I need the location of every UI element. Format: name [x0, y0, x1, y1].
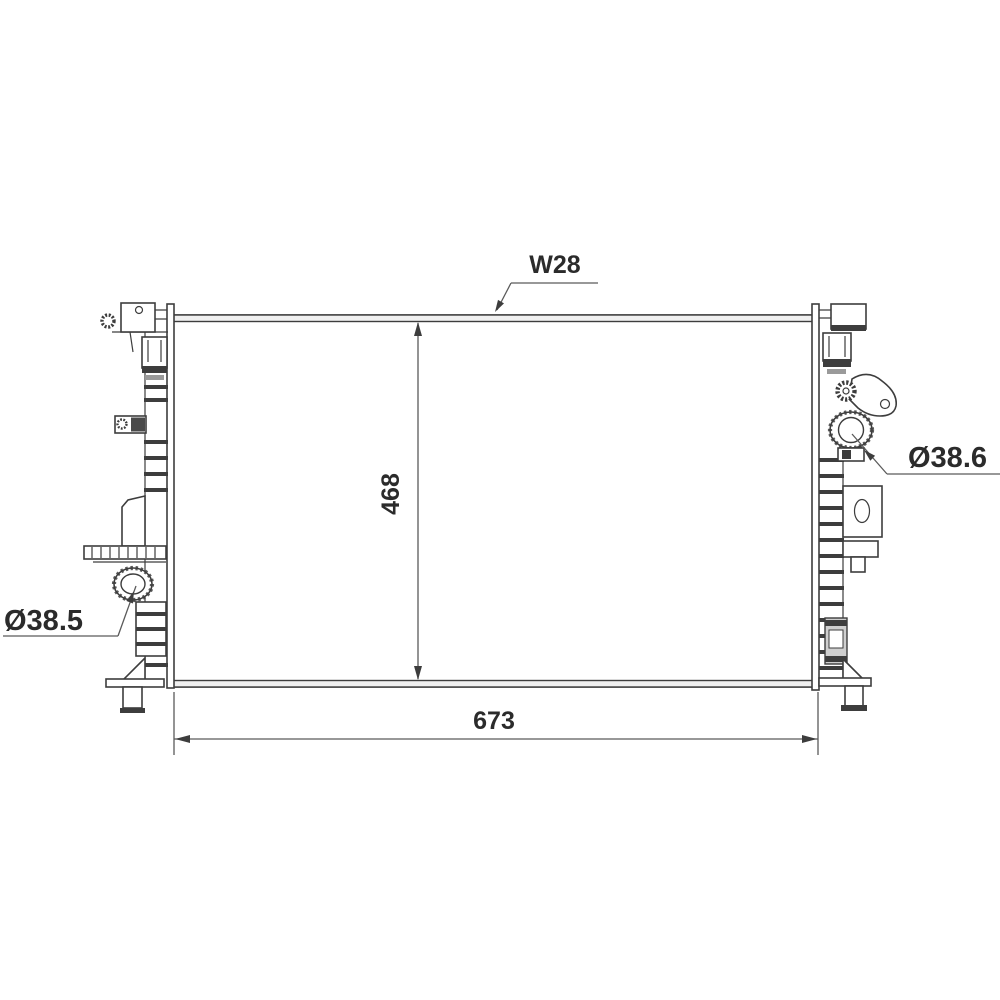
right-lower-block	[825, 618, 847, 664]
tank-rib	[144, 385, 168, 389]
tank-rib	[819, 602, 844, 606]
tank-rib	[136, 627, 166, 631]
slot-bracket-step	[851, 557, 865, 572]
lower-block-window	[829, 630, 843, 648]
neck-seal-band	[823, 359, 851, 367]
port-base-block	[842, 450, 851, 459]
dim-top-width-arrow	[495, 300, 504, 312]
right-inlet-port	[830, 412, 872, 448]
dim-core-width: 673	[174, 692, 818, 755]
tank-rib	[136, 642, 166, 646]
dim-core-width-label: 673	[473, 707, 515, 735]
bracket-plate	[121, 303, 155, 332]
bracket-band	[831, 325, 866, 331]
arm-body	[849, 374, 896, 416]
lower-block-band-top	[825, 620, 847, 626]
right-port-base	[838, 448, 864, 461]
neck-lower-band	[827, 369, 846, 374]
right-slot-bracket	[843, 486, 882, 572]
tank-rib	[144, 456, 168, 460]
dim-core-width-arrow-left	[175, 735, 190, 743]
left-foot	[106, 679, 164, 713]
tank-rib	[136, 612, 166, 616]
port-inner-ring	[839, 418, 864, 443]
left-tank-bulge	[122, 496, 145, 546]
tank-rib	[144, 472, 168, 476]
right-tank-wall	[812, 304, 819, 690]
left-foot-pad	[120, 708, 145, 713]
left-foot-leg	[123, 687, 142, 708]
right-filler-neck	[823, 333, 851, 374]
tank-rib	[819, 586, 844, 590]
core-top-edge	[168, 315, 818, 322]
tank-rib	[819, 570, 844, 574]
core-bottom-edge	[168, 681, 818, 688]
flange-plate	[84, 546, 166, 559]
tank-rib	[819, 554, 844, 558]
cap-lower-band	[145, 375, 164, 380]
radiator-technical-drawing: W28 468 673 Ø38.5 Ø38	[0, 0, 1000, 1000]
right-foot-pad	[841, 705, 867, 711]
left-cap-fitting	[142, 337, 167, 380]
tank-rib	[819, 506, 844, 510]
fitting-dark-block	[131, 418, 145, 432]
radiator-core	[168, 315, 818, 687]
right-tank-assembly	[812, 304, 896, 711]
left-flange	[84, 546, 166, 562]
bolt-ring-icon	[838, 383, 855, 400]
bracket-lines	[819, 310, 831, 318]
dim-top-width: W28	[495, 251, 598, 312]
left-tank-assembly	[84, 303, 174, 713]
dim-core-height-label: 468	[377, 473, 405, 515]
tank-rib	[819, 522, 844, 526]
right-foot-plate	[819, 678, 871, 686]
tank-rib	[144, 440, 168, 444]
dim-core-width-arrow-right	[802, 735, 817, 743]
tank-rib	[819, 474, 844, 478]
right-mount-arm	[838, 374, 897, 416]
tank-rib	[144, 488, 168, 492]
top-right-mount-bracket	[819, 304, 866, 331]
core-body	[168, 315, 818, 687]
left-foot-plate	[106, 679, 164, 687]
bolt-head-icon	[102, 315, 114, 327]
slot-bracket-lower	[843, 541, 878, 557]
port-inner-ring	[121, 574, 145, 594]
tank-rib	[819, 666, 844, 670]
fitting-nipple-icon	[118, 420, 127, 429]
tank-rib	[819, 490, 844, 494]
right-foot-leg	[845, 686, 863, 706]
cap-seal-band	[142, 366, 167, 373]
left-tank-wall	[167, 304, 174, 688]
neck-body	[823, 333, 851, 361]
left-side-fitting	[115, 416, 146, 433]
right-foot	[819, 678, 871, 711]
tank-rib	[144, 398, 168, 402]
dim-right-port-label: Ø38.6	[908, 442, 987, 474]
tank-rib	[144, 663, 168, 667]
dim-left-port-label: Ø38.5	[4, 605, 83, 637]
cap-body	[142, 337, 167, 368]
tank-rib	[819, 538, 844, 542]
dim-top-width-label: W28	[529, 251, 581, 279]
drawing-canvas: W28 468 673 Ø38.5 Ø38	[0, 0, 1000, 1000]
slot-bracket-body	[843, 486, 882, 537]
dim-right-port-diameter: Ø38.6	[852, 434, 1000, 474]
